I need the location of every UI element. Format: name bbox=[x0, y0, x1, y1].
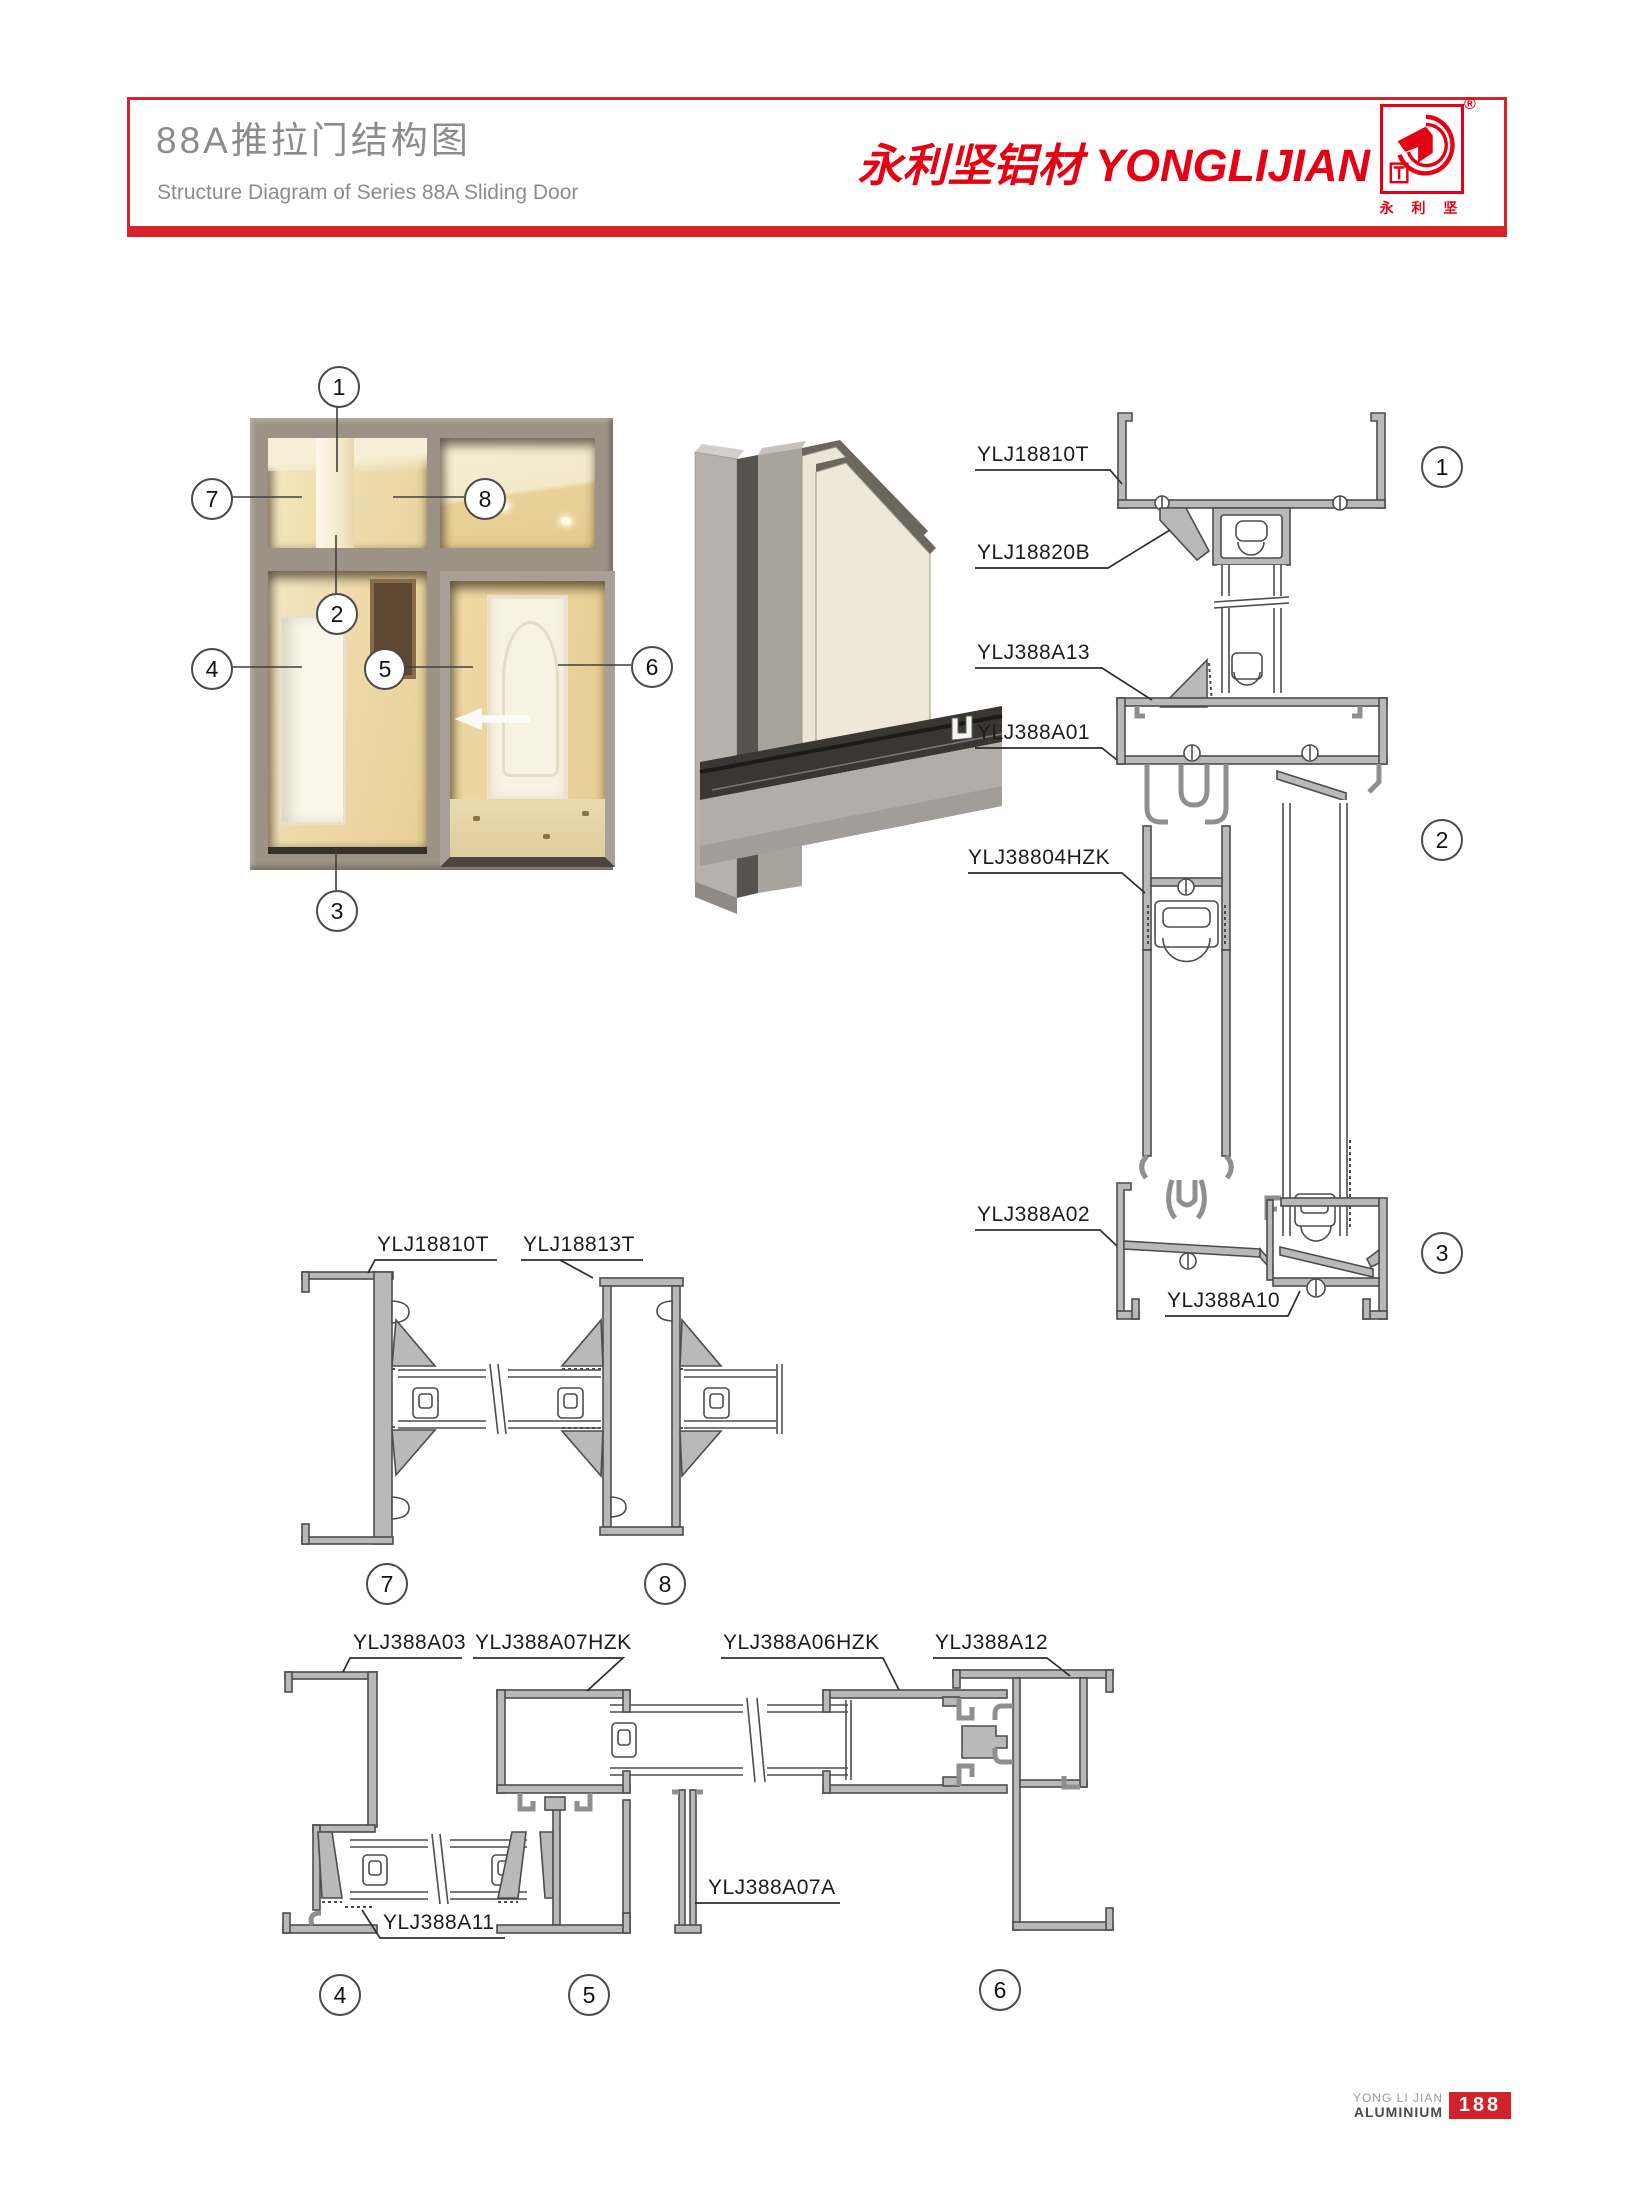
section-callout-1: 1 bbox=[1421, 446, 1463, 488]
window-callout-3: 3 bbox=[316, 890, 358, 932]
catalog-page: 88A推拉门结构图 Structure Diagram of Series 88… bbox=[0, 0, 1635, 2203]
part-label: YLJ388A03 bbox=[353, 1631, 466, 1655]
profile-3d-render bbox=[695, 440, 1002, 914]
part-label: YLJ388A06HZK bbox=[723, 1631, 880, 1655]
section-callout-4: 4 bbox=[319, 1974, 361, 2016]
part-label: YLJ388A10 bbox=[1167, 1289, 1280, 1313]
window-callout-5: 5 bbox=[364, 648, 406, 690]
part-label: YLJ388A01 bbox=[977, 721, 1090, 745]
part-label: YLJ18813T bbox=[523, 1233, 635, 1257]
page-number-badge: 188 bbox=[1449, 2092, 1511, 2119]
window-callout-2: 2 bbox=[316, 593, 358, 635]
section-callout-8: 8 bbox=[644, 1563, 686, 1605]
window-callout-8: 8 bbox=[464, 478, 506, 520]
window-leader-lines bbox=[229, 403, 631, 890]
footer-brand-line1: YONG LI JIAN bbox=[1260, 2091, 1443, 2105]
part-label: YLJ388A07A bbox=[708, 1876, 836, 1900]
part-label: YLJ388A07HZK bbox=[475, 1631, 632, 1655]
section-callout-5: 5 bbox=[568, 1974, 610, 2016]
part-label: YLJ388A12 bbox=[935, 1631, 1048, 1655]
section-drawings bbox=[0, 0, 1635, 2203]
window-callout-1: 1 bbox=[318, 366, 360, 408]
section-callout-7: 7 bbox=[366, 1563, 408, 1605]
section-callout-6: 6 bbox=[979, 1969, 1021, 2011]
part-label: YLJ388A11 bbox=[383, 1911, 495, 1935]
horizontal-section-4-5-6-drawing bbox=[283, 1658, 1113, 1938]
part-label: YLJ388A13 bbox=[977, 641, 1090, 665]
part-label: YLJ18810T bbox=[977, 443, 1089, 467]
window-callout-4: 4 bbox=[191, 648, 233, 690]
section-callout-2: 2 bbox=[1421, 819, 1463, 861]
part-label: YLJ18810T bbox=[377, 1233, 489, 1257]
part-label: YLJ18820B bbox=[977, 541, 1090, 565]
footer-brand-line2: ALUMINIUM bbox=[1260, 2104, 1443, 2120]
part-label: YLJ388A02 bbox=[977, 1203, 1090, 1227]
window-callout-7: 7 bbox=[191, 478, 233, 520]
window-callout-6: 6 bbox=[631, 646, 673, 688]
part-label: YLJ38804HZK bbox=[968, 846, 1110, 870]
section-callout-3: 3 bbox=[1421, 1232, 1463, 1274]
horizontal-section-7-8-drawing bbox=[302, 1260, 782, 1544]
